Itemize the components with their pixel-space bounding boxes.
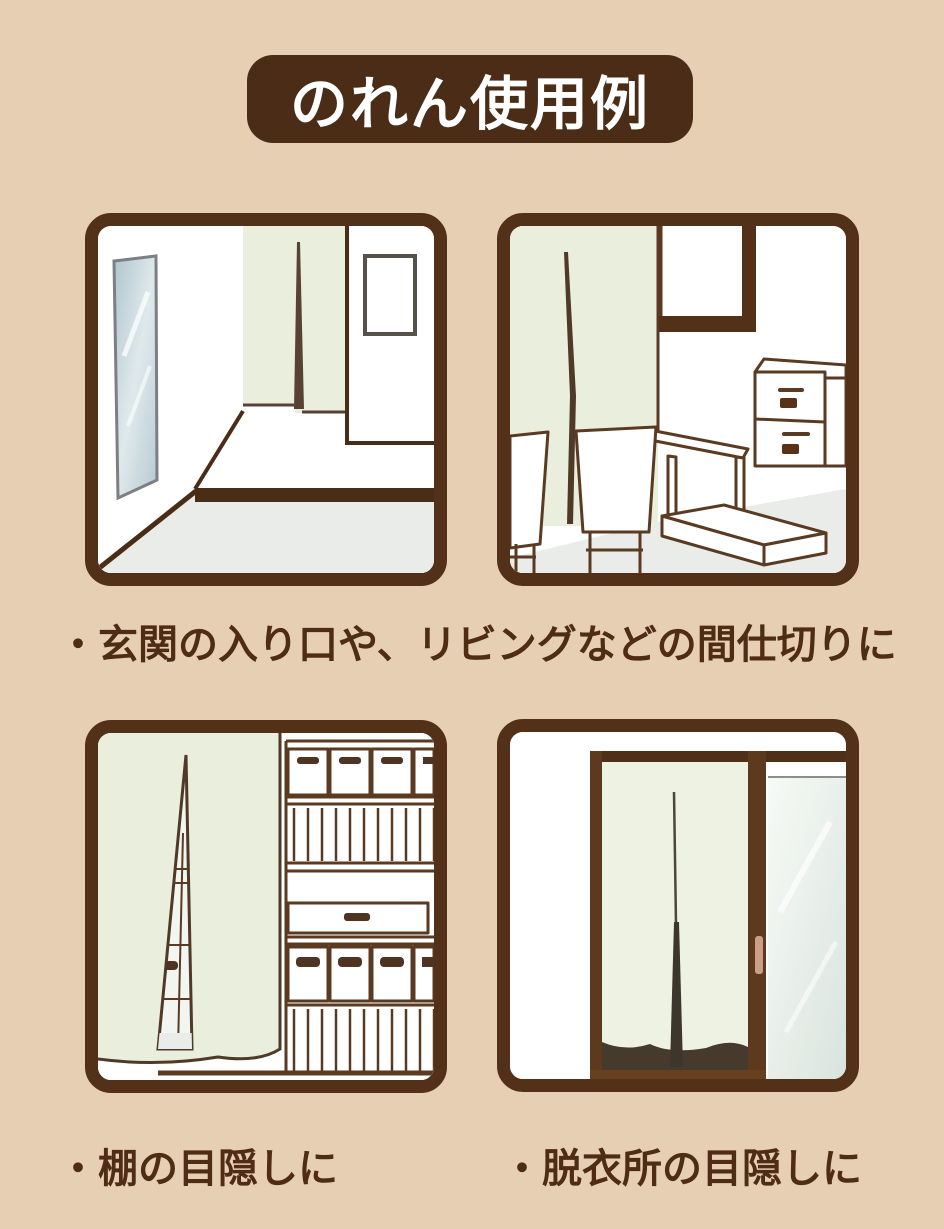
noren-curtain (602, 762, 748, 1075)
title-badge: のれん使用例 (247, 55, 693, 143)
panel-dressing (497, 719, 859, 1092)
noren-curtain (243, 226, 345, 414)
entrance-hallway-noren-illustration (98, 226, 434, 573)
picture-frame (365, 256, 415, 334)
panel-entrance (85, 213, 447, 586)
noren-usage-sheet: のれん使用例 (0, 0, 944, 1229)
lintel-bar (590, 751, 846, 762)
page-title: のれん使用例 (290, 57, 650, 141)
frosted-glass-door (768, 777, 846, 1079)
dressing-room-doorway-noren-illustration (510, 732, 846, 1079)
caption-shelf: ・棚の目隠しに (58, 1136, 338, 1194)
shelf-cover-noren-illustration (98, 733, 434, 1080)
caption-partition: ・玄関の入り口や、リビングなどの間仕切りに (58, 612, 897, 670)
panel-shelf (85, 720, 447, 1093)
noren-curtain (98, 733, 280, 1063)
panel-living (497, 213, 859, 586)
caption-dressing: ・脱衣所の目隠しに (502, 1136, 862, 1194)
living-room-noren-illustration (510, 226, 846, 573)
door-handle (755, 936, 763, 974)
wall-mirror (114, 256, 157, 498)
chest-of-drawers (755, 359, 846, 466)
